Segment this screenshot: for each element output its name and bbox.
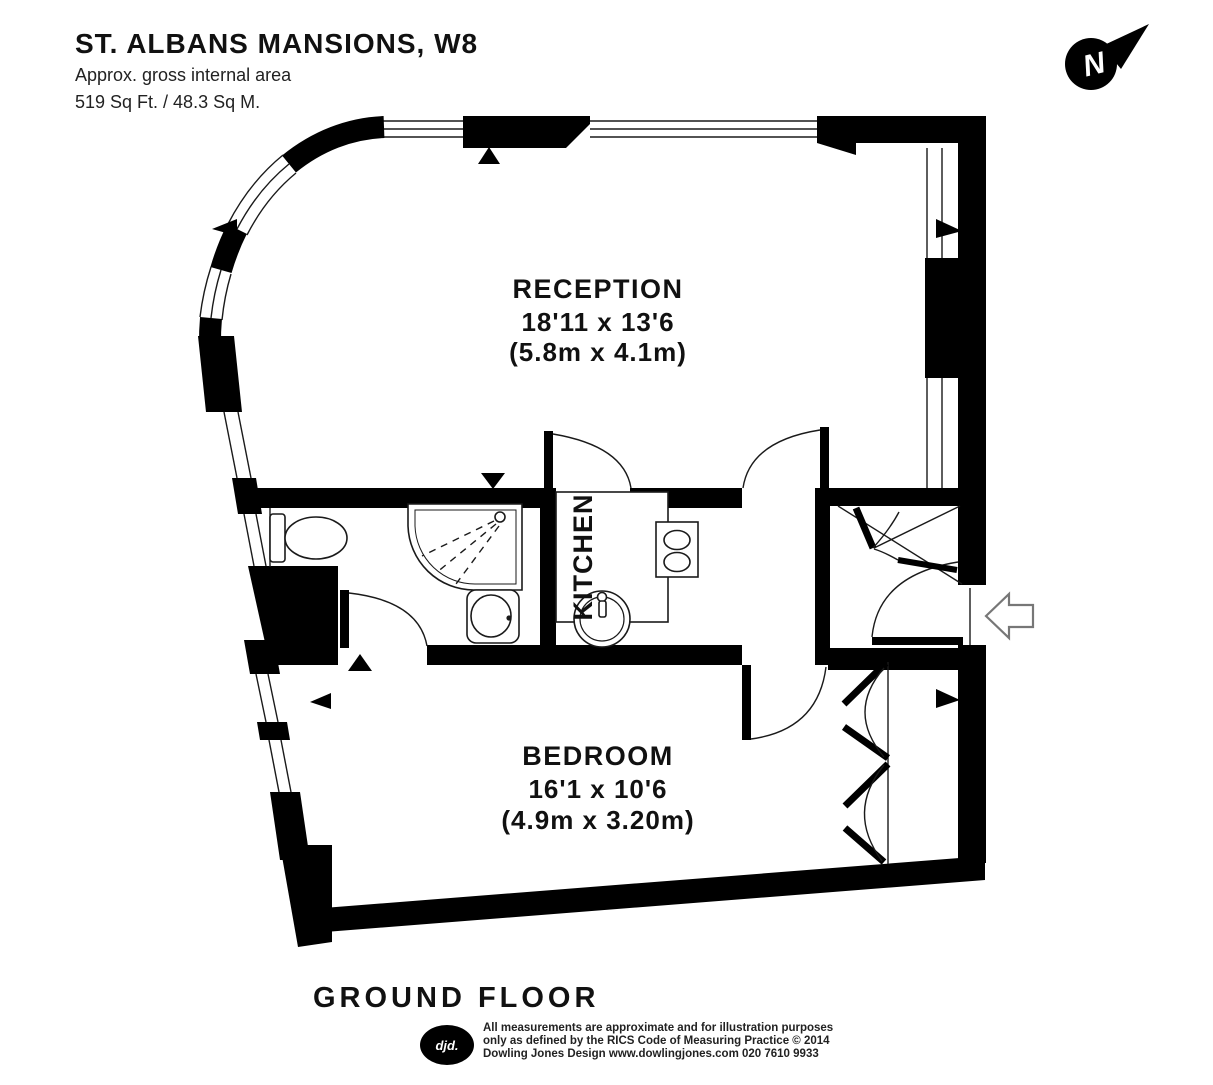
marker-wardrobe-right-icon xyxy=(936,689,960,708)
right-wall-lower xyxy=(958,645,986,863)
left-wall-jog xyxy=(198,336,242,412)
disclaimer-line-2: only as defined by the RICS Code of Meas… xyxy=(483,1035,830,1047)
divider-kitchen-hall xyxy=(815,488,830,665)
reception-door-leaf xyxy=(820,427,829,489)
kitchen-door-leaf xyxy=(544,431,553,489)
floor-label: GROUND FLOOR xyxy=(313,982,599,1014)
hall-cupboard xyxy=(838,506,962,584)
left-window-a xyxy=(220,412,256,478)
right-window-1 xyxy=(927,148,942,258)
page-title: ST. ALBANS MANSIONS, W8 xyxy=(75,28,478,59)
reception-door-swing xyxy=(743,430,820,488)
compass-icon: N xyxy=(1065,24,1149,90)
bedroom-label: BEDROOM xyxy=(522,741,674,771)
djd-logo: djd. xyxy=(420,1025,474,1065)
marker-bedroom-up-icon xyxy=(348,654,372,671)
band-bottom-wall-2 xyxy=(828,648,985,670)
disclaimer: All measurements are approximate and for… xyxy=(483,1022,833,1060)
bathroom-door-leaf xyxy=(340,590,349,648)
bathroom-door-swing xyxy=(349,593,427,646)
left-window-d xyxy=(269,740,291,792)
divider-bath-kitchen xyxy=(540,488,556,665)
marker-bath-down-icon xyxy=(481,473,505,489)
left-window-b xyxy=(244,514,266,566)
marker-bedroom-left-icon xyxy=(310,693,331,709)
right-wall-upper xyxy=(958,118,986,585)
page-area: 519 Sq Ft. / 48.3 Sq M. xyxy=(75,92,260,112)
marker-top-up-icon xyxy=(478,147,500,164)
shower-icon xyxy=(408,504,522,590)
reception-dims-metric: (5.8m x 4.1m) xyxy=(509,337,687,367)
hob-icon xyxy=(656,522,698,577)
bedroom-left-corner xyxy=(244,640,280,674)
top-right-chamfer xyxy=(817,142,856,155)
entry-arrow-icon xyxy=(986,594,1033,638)
djd-logo-text: djd. xyxy=(435,1038,458,1053)
disclaimer-line-3: Dowling Jones Design www.dowlingjones.co… xyxy=(483,1048,819,1060)
left-wall-d xyxy=(257,722,290,740)
right-window-2 xyxy=(927,378,942,488)
disclaimer-line-1: All measurements are approximate and for… xyxy=(483,1022,833,1034)
footer: GROUND FLOOR djd. All measurements are a… xyxy=(313,982,833,1065)
top-wall-pillar xyxy=(463,116,590,148)
band-top-wall-3 xyxy=(822,488,967,506)
toilet-icon xyxy=(270,514,347,562)
left-window-c xyxy=(256,674,278,722)
page-subtitle: Approx. gross internal area xyxy=(75,65,292,85)
reception-dims-imperial: 18'11 x 13'6 xyxy=(521,307,674,337)
floorplan-canvas: ST. ALBANS MANSIONS, W8 Approx. gross in… xyxy=(0,0,1213,1080)
bedroom-door-swing xyxy=(751,667,826,739)
bedroom-bottom-wall xyxy=(298,856,985,934)
header: ST. ALBANS MANSIONS, W8 Approx. gross in… xyxy=(75,28,478,112)
wardrobe-bifold-doors xyxy=(844,663,888,862)
bedroom-dims-metric: (4.9m x 3.20m) xyxy=(501,805,694,835)
bay-window xyxy=(200,127,384,345)
wardrobe xyxy=(844,662,888,864)
top-wall-window-right xyxy=(590,121,818,137)
top-wall-window-left xyxy=(383,121,465,137)
kitchen-door-swing xyxy=(553,434,631,488)
kitchen-label: KITCHEN xyxy=(568,494,598,621)
basin-icon xyxy=(467,590,519,643)
entry xyxy=(872,562,1033,645)
right-wall-mid xyxy=(925,258,960,378)
bedroom-door-leaf xyxy=(742,665,751,740)
band-bottom-wall-1 xyxy=(427,645,742,665)
bedroom-dims-imperial: 16'1 x 10'6 xyxy=(528,774,667,804)
reception-label: RECEPTION xyxy=(512,274,683,304)
